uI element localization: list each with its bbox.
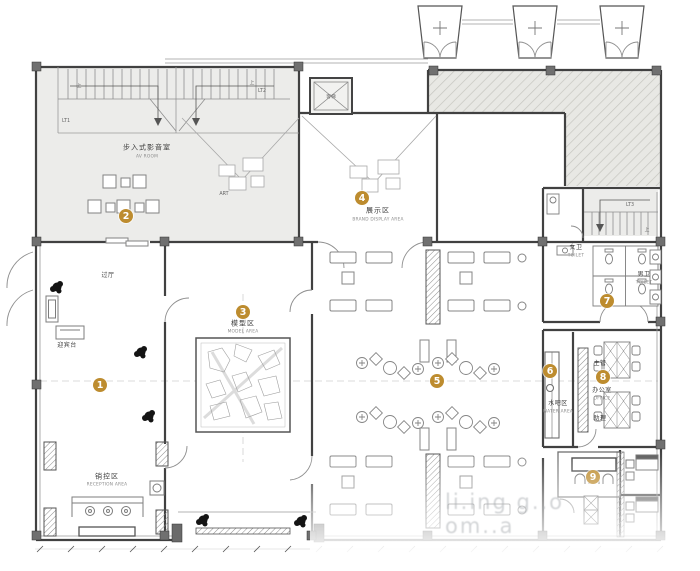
label-display-cn: 展示区	[366, 208, 390, 215]
seating-area	[330, 250, 526, 528]
label-up-lt1: 上	[77, 84, 82, 89]
label-av-room-cn: 步入式影音室	[123, 145, 171, 152]
label-up-lt3: 上	[645, 228, 650, 233]
watermark-text: li.ing g..o om..a	[445, 490, 615, 538]
label-women-toilet-en: TOILET	[568, 254, 584, 258]
label-water-bar-cn: 水吧区	[548, 401, 568, 407]
area-marker-6: 6	[543, 364, 557, 378]
label-assistant: 助理	[593, 416, 606, 422]
label-model-cn: 模型区	[231, 321, 255, 328]
label-reception-en: RECEPTION AREA	[87, 483, 128, 487]
label-men-toilet-cn: 男卫	[637, 272, 650, 278]
label-reception-cn: 销控区	[95, 474, 119, 481]
label-office-en: OFFICE	[594, 397, 611, 401]
label-stair-lt2: LT2	[258, 89, 266, 94]
label-up-lt2: 上	[250, 81, 255, 86]
label-stair-lt1: LT1	[62, 119, 70, 124]
label-men-toilet-en: TOILET	[636, 281, 652, 285]
area-marker-8: 8	[596, 370, 610, 384]
area-marker-7: 7	[600, 294, 614, 308]
label-art-wall: ART	[219, 192, 228, 197]
label-elevator: 客梯	[326, 95, 336, 100]
model-table	[196, 338, 290, 432]
area-marker-4: 4	[355, 191, 369, 205]
label-hallway: 过厅	[101, 273, 114, 279]
area-marker-9: 9	[586, 470, 600, 484]
dimension-ticks	[35, 546, 663, 552]
center-lines	[40, 294, 658, 462]
label-av-room-en: AV ROOM	[136, 155, 158, 159]
area-marker-1: 1	[93, 378, 107, 392]
label-office-cn: 办公室	[592, 388, 612, 394]
area-marker-5: 5	[430, 374, 444, 388]
label-women-toilet-cn: 女卫	[569, 245, 582, 251]
lounge-clusters	[357, 353, 500, 434]
label-supervisor: 主管	[593, 361, 606, 367]
label-display-en: BRAND DISPLAY AREA	[352, 218, 403, 222]
area-marker-2: 2	[119, 209, 133, 223]
label-stair-lt3: LT3	[626, 203, 634, 208]
label-model-en: MODEL AREA	[228, 330, 259, 334]
area-marker-3: 3	[236, 305, 250, 319]
label-welcome-desk: 迎宾台	[57, 343, 77, 349]
entrance-vestibules	[418, 6, 644, 58]
floor-plan: 过厅 迎宾台 步入式影音室 AV ROOM ART 展示区 BRAND DISP…	[0, 0, 700, 571]
label-water-bar-en: WATER AREA	[543, 410, 573, 414]
